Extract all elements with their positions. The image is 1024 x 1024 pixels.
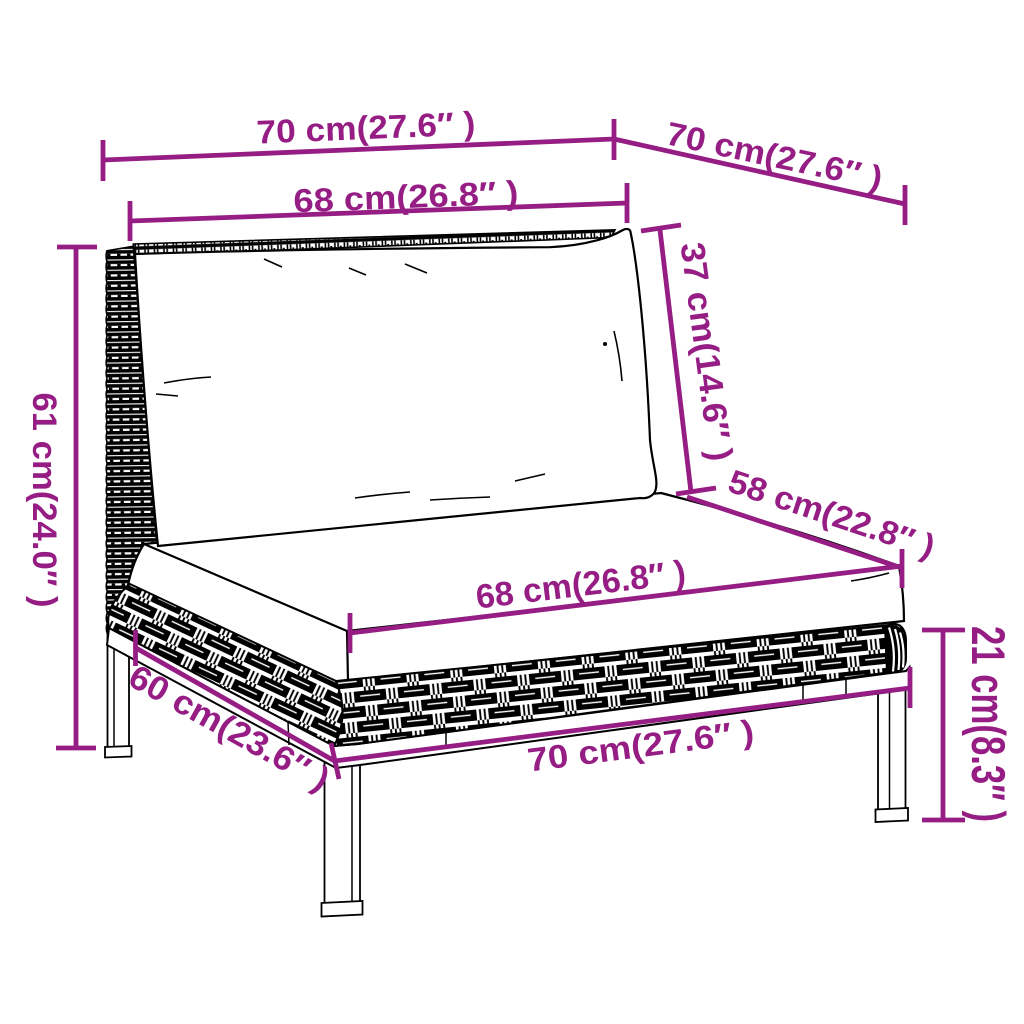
svg-text:21 cm(8.3″ ): 21 cm(8.3″ ) xyxy=(962,626,1015,822)
svg-text:61 cm(24.0″ ): 61 cm(24.0″ ) xyxy=(25,393,63,608)
